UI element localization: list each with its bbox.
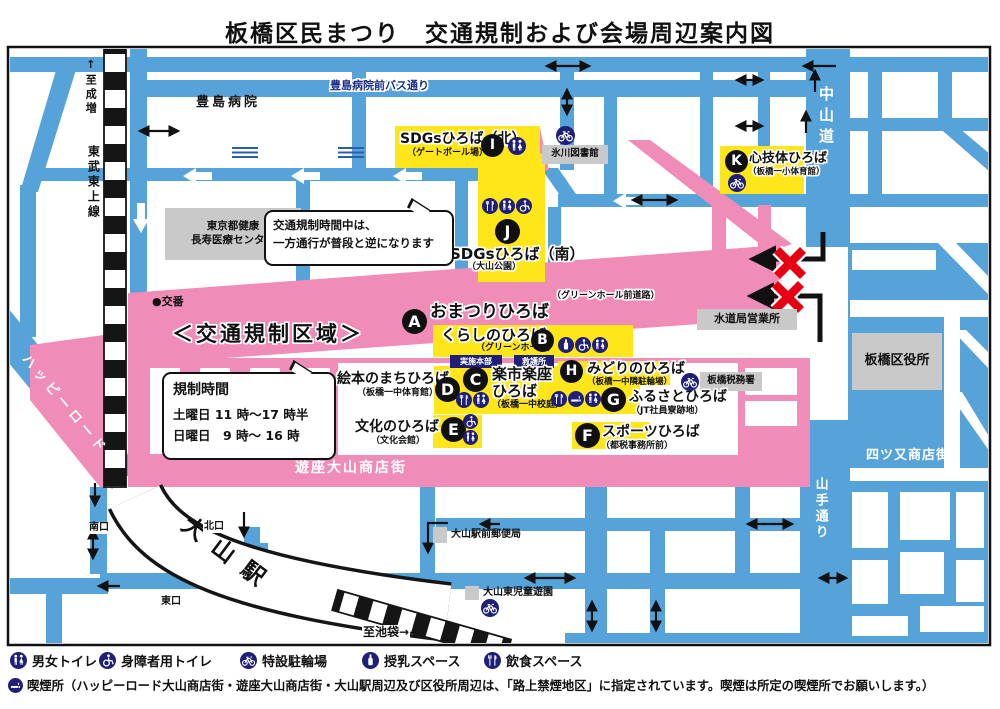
hikawa-library-building: 氷川図書館: [542, 145, 608, 164]
legend-label: 特設駐輪場: [262, 651, 327, 670]
venue-sub-ehon: （板橋一中体育館）: [357, 388, 438, 399]
toilet-icon: [499, 198, 515, 214]
toilet-icon: [463, 430, 478, 445]
legend-label: 授乳スペース: [384, 651, 460, 670]
to-narimasu-label: ↑至成増: [84, 58, 97, 116]
venue-sub-midori: （板橋一中隣駐輪場）: [587, 377, 672, 387]
venue-letter-K: K: [725, 150, 748, 173]
notice-line1: 交通規制時間中は、: [273, 216, 445, 234]
bicycle-icon: [681, 373, 699, 391]
nakasend-road-label: 中山道: [817, 86, 835, 149]
venue-letter-I: I: [481, 134, 504, 157]
venue-letter-F: F: [575, 423, 600, 448]
legend-item-nursing: 授乳スペース: [362, 651, 460, 670]
tobu-tojo-line-label: 東武東上線: [86, 145, 100, 220]
notice-line2: 一方通行が普段と逆になります: [273, 234, 445, 252]
venue-letter-A: A: [402, 309, 427, 334]
waterworks-office-building: 水道局営業所: [697, 309, 797, 330]
smoking-note-text: 喫煙所（ハッピーロード大山商店街・遊座大山商店街・大山駅周辺及び区役所周辺は、「…: [27, 676, 934, 694]
toilet-icon: [592, 337, 608, 353]
to-ikebukuro-label: 至池袋→: [362, 625, 410, 639]
regulation-zone-label: ＜交通規制区域＞: [172, 322, 364, 347]
venue-letter-J: J: [495, 219, 520, 244]
venue-sub-bunka: （文化会館）: [371, 436, 425, 447]
venue-letter-C: C: [463, 367, 488, 392]
venue-name-sdgs-north: SDGsひろば（北）: [400, 131, 526, 148]
venue-name-shingitai: 心技体ひろば: [749, 151, 827, 167]
venue-sub-sdgs-south: （大山公園）: [467, 262, 521, 273]
venue-name-rakuichi: 楽市楽座ひろば: [492, 366, 558, 399]
health-center-line2: 長寿医療センター: [191, 234, 275, 248]
venue-name-sdgs-south: SDGsひろば（南）: [450, 245, 585, 263]
park-building: [465, 586, 479, 600]
venue-sub-sports: （都税事務所前）: [601, 441, 673, 452]
bicycle-icon: [240, 652, 257, 669]
yuza-oyama-street-label: 遊座大山商店街: [295, 460, 407, 477]
one-way-notice-bubble: 交通規制時間中は、 一方通行が普段と逆になります: [264, 210, 454, 266]
food-icon: [551, 391, 567, 407]
time-title: 規制時間: [173, 379, 325, 399]
smoking-icon: [8, 678, 23, 693]
food-icon: [456, 392, 472, 408]
oyama-station-band: [135, 497, 448, 612]
legend-label: 男女トイレ: [32, 651, 97, 670]
food-icon: [484, 652, 501, 669]
venue-sub-sdgs-north: （ゲートボール場）: [407, 148, 488, 159]
venue-letter-B: B: [531, 329, 554, 352]
legend-item-toilet: 男女トイレ: [10, 651, 97, 670]
toshima-hospital-label: 豊島病院: [196, 95, 260, 111]
legend-label: 飲食スペース: [506, 651, 582, 670]
yotsumata-street-label: 四ツ又商店街: [866, 448, 950, 464]
yamate-dori-label: 山手通り: [812, 477, 828, 541]
legend-item-wheelchair: 身障者用トイレ: [99, 651, 212, 670]
ward-office-building: 板橋区役所: [852, 333, 942, 390]
venue-letter-G: G: [601, 387, 626, 412]
venue-sub-omatsuri: （グリーンホール前道路）: [552, 291, 660, 302]
bicycle-icon: [556, 126, 575, 145]
venue-name-furusato: ふるさとひろば: [629, 389, 727, 406]
venue-name-ehon: 絵本のまちひろば: [337, 371, 449, 388]
venue-name-midori: みどりのひろば: [587, 361, 685, 378]
toilet-icon: [585, 391, 601, 407]
time-sunday: 日曜日 9 時〜 16 時: [173, 425, 325, 444]
south-exit-label: 南口: [88, 522, 110, 534]
east-exit-label: 東口: [160, 596, 182, 608]
page-title: 板橋区民まつり 交通規制および会場周辺案内図: [0, 14, 1000, 48]
venue-letter-H: H: [560, 360, 583, 383]
wheelchair-icon: [99, 652, 116, 669]
toilet-icon: [508, 137, 526, 155]
legend-label: 身障者用トイレ: [121, 651, 212, 670]
toilet-icon: [10, 652, 27, 669]
post-office-building: [433, 527, 447, 543]
nursing-icon: [558, 337, 574, 353]
venue-name-bunka: 文化のひろば: [355, 419, 439, 436]
regulation-time-bubble: 規制時間 土曜日 11 時〜17 時半 日曜日 9 時〜 16 時: [162, 372, 336, 460]
bicycle-icon: [481, 599, 499, 617]
festival-map-page: 板橋区民まつり 交通規制および会場周辺案内図: [0, 0, 1000, 709]
legend-item-food: 飲食スペース: [484, 651, 582, 670]
wheelchair-icon: [575, 337, 591, 353]
nursing-icon: [362, 652, 379, 669]
tobu-tojo-railway: [104, 49, 126, 487]
time-saturday: 土曜日 11 時〜17 時半: [173, 404, 325, 423]
bicycle-icon: [728, 174, 746, 192]
food-icon: [482, 198, 498, 214]
bus-street-label: 豊島病院前バス通り: [330, 79, 429, 92]
health-center-line1: 東京都健康: [207, 220, 260, 234]
wheelchair-icon: [516, 198, 532, 214]
toilet-icon: [473, 392, 489, 408]
post-office-label: 大山駅前郵便局: [451, 529, 521, 541]
wheelchair-icon: [463, 414, 478, 429]
legend-item-bicycle: 特設駐輪場: [240, 651, 327, 670]
koban-label: ●交番: [152, 295, 184, 308]
venue-sub-shingitai: （板橋一小体育館）: [748, 167, 825, 177]
venue-name-omatsuri: おまつりひろば: [430, 302, 549, 322]
venue-sub-furusato: （JT社員寮跡地）: [631, 406, 704, 417]
smoking-note: 喫煙所（ハッピーロード大山商店街・遊座大山商店街・大山駅周辺及び区役所周辺は、「…: [8, 676, 934, 694]
venue-name-sports: スポーツひろば: [602, 424, 700, 441]
smoking-icon: [568, 391, 584, 407]
park-label: 大山東児童遊園: [483, 587, 553, 599]
north-exit-label: 北口: [203, 521, 225, 533]
